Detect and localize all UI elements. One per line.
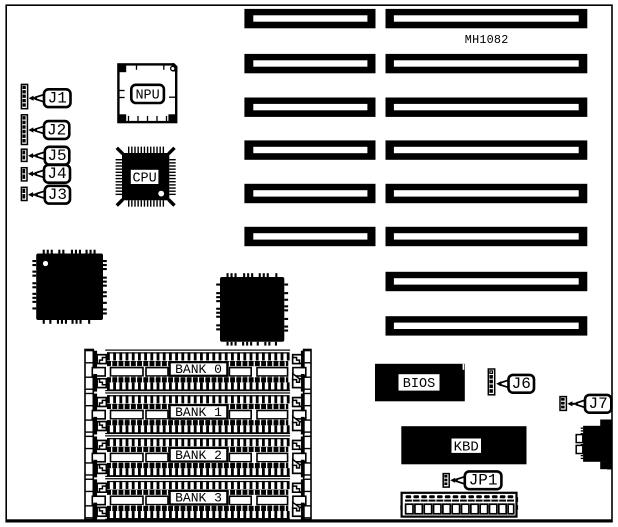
svg-text:KBD: KBD <box>454 439 479 455</box>
svg-text:J1: J1 <box>48 90 67 108</box>
svg-text:NPU: NPU <box>135 89 159 104</box>
svg-text:J2: J2 <box>47 121 66 139</box>
svg-text:BIOS: BIOS <box>403 377 435 392</box>
svg-text:BANK 3: BANK 3 <box>175 491 222 506</box>
svg-text:JP1: JP1 <box>469 472 498 490</box>
svg-text:J7: J7 <box>589 395 608 413</box>
svg-text:CPU: CPU <box>132 171 156 186</box>
svg-text:J6: J6 <box>512 375 531 393</box>
svg-text:J4: J4 <box>47 165 66 183</box>
svg-text:J3: J3 <box>48 186 67 204</box>
svg-text:J5: J5 <box>47 147 66 165</box>
svg-text:MH1082: MH1082 <box>465 33 509 47</box>
svg-text:BANK 2: BANK 2 <box>175 448 222 463</box>
svg-text:BANK 1: BANK 1 <box>175 405 222 420</box>
svg-text:BANK 0: BANK 0 <box>175 362 222 377</box>
